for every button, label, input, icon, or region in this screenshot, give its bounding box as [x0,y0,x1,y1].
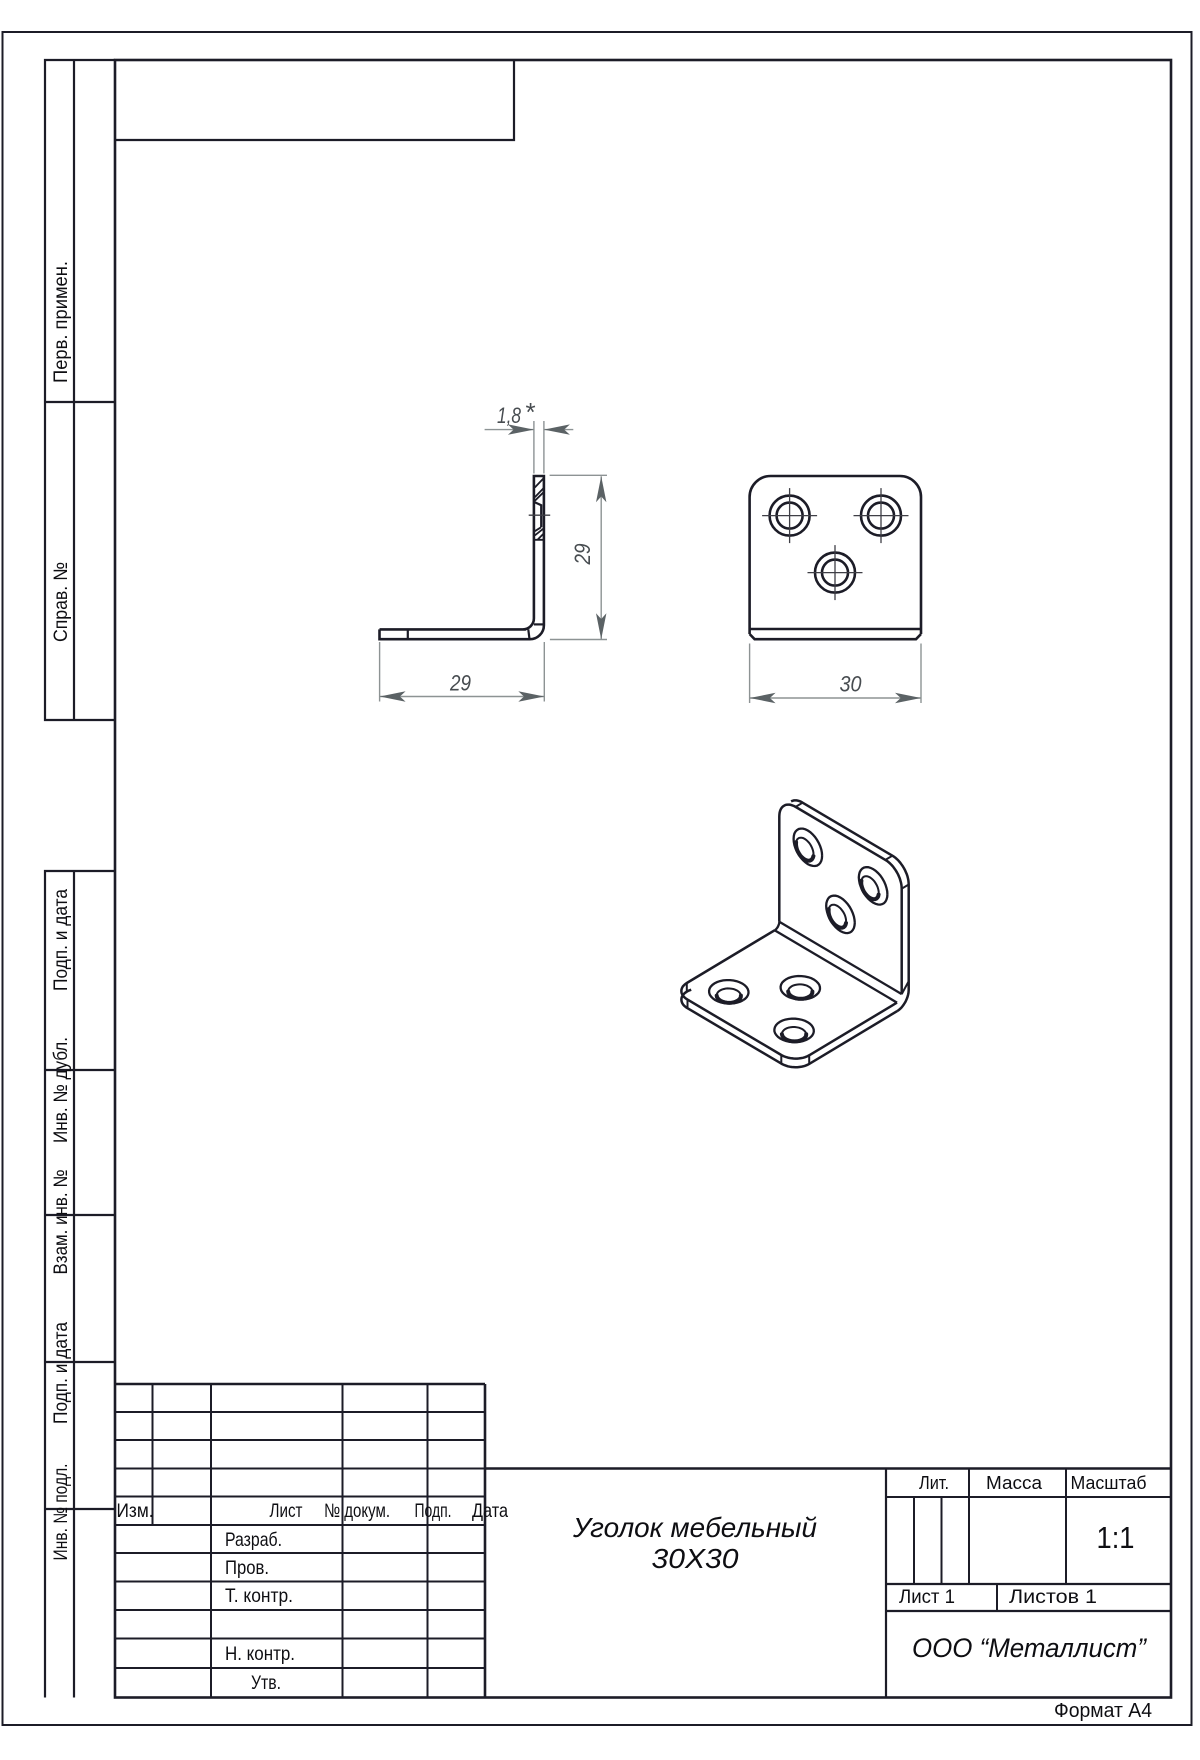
svg-text:Н. контр.: Н. контр. [225,1643,295,1665]
svg-text:30: 30 [840,672,862,697]
svg-text:1:1: 1:1 [1097,1520,1135,1555]
svg-text:*: * [526,397,536,427]
svg-text:Дата: Дата [472,1500,508,1522]
svg-text:Изм.: Изм. [117,1500,154,1522]
svg-text:Справ. №: Справ. № [50,562,72,642]
svg-text:ООО “Металлист”: ООО “Металлист” [912,1633,1147,1663]
svg-text:29: 29 [570,543,595,565]
svg-text:1,8: 1,8 [497,403,521,428]
svg-text:30Х30: 30Х30 [652,1543,739,1574]
svg-text:№ докум.: № докум. [324,1500,390,1522]
svg-text:Перв. примен.: Перв. примен. [50,261,72,383]
svg-text:Подп.: Подп. [415,1500,452,1522]
svg-text:Лит.: Лит. [919,1472,949,1493]
svg-text:Уголок мебельный: Уголок мебельный [572,1512,817,1543]
svg-text:Взам. инв. №: Взам. инв. № [50,1170,72,1275]
svg-text:Разраб.: Разраб. [225,1529,282,1551]
svg-text:Формат А4: Формат А4 [1054,1700,1152,1722]
svg-text:Инв. № подл.: Инв. № подл. [50,1464,72,1561]
svg-text:Инв. № дубл.: Инв. № дубл. [50,1037,72,1143]
svg-text:Утв.: Утв. [251,1672,281,1694]
svg-text:Лист 1: Лист 1 [899,1586,955,1608]
svg-text:29: 29 [449,671,471,696]
svg-text:Т. контр.: Т. контр. [225,1585,293,1607]
svg-text:Масштаб: Масштаб [1071,1472,1147,1493]
svg-text:Листов 1: Листов 1 [1009,1586,1097,1608]
svg-text:Подп. и дата: Подп. и дата [50,1322,72,1424]
svg-text:Подп. и дата: Подп. и дата [50,889,72,991]
svg-text:Лист: Лист [270,1500,303,1522]
svg-text:Пров.: Пров. [225,1557,269,1579]
svg-text:Масса: Масса [986,1472,1043,1493]
